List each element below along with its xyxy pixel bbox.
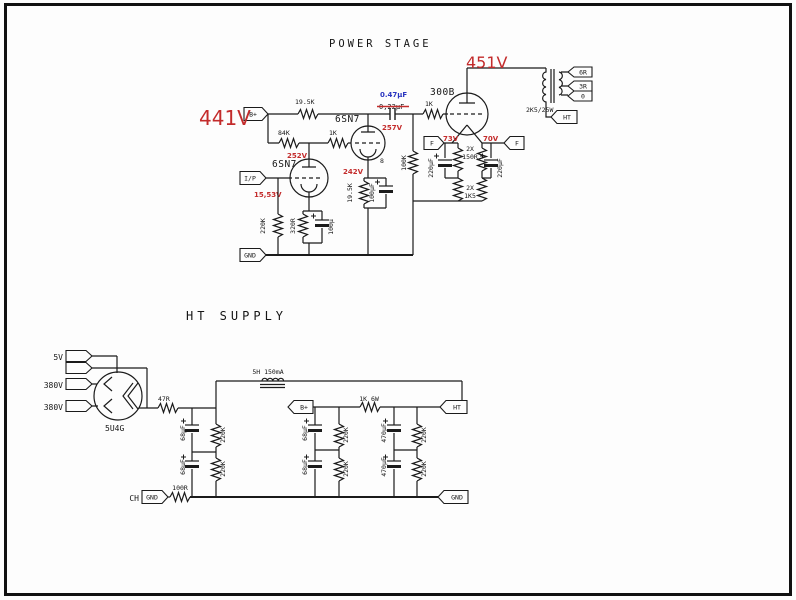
hv-voltage-label-2: 380V <box>44 403 63 412</box>
cap-filament-left <box>434 154 452 168</box>
tube3-plate-wire <box>459 68 546 103</box>
resistor-plate2-label: 19.5K <box>295 98 315 106</box>
resistor-plate1 <box>279 139 299 148</box>
wire-filter-col3 <box>394 407 417 497</box>
filament-r-value: 150R <box>462 153 478 161</box>
cap-col2-upper-label: 68µF <box>301 425 309 441</box>
hv-flag-1 <box>66 379 92 390</box>
ht-bplus-label: B+ <box>300 404 308 412</box>
resistor-1k6w-label: 1K 6W <box>359 395 379 403</box>
hv-voltage-label-1: 380V <box>44 381 63 390</box>
resistor-hum-right <box>478 178 487 201</box>
sec-3r-label: 3R <box>579 83 587 91</box>
resistor-gridleak3-label: 100K <box>400 155 408 171</box>
gnd-flag-label: GND <box>244 252 256 260</box>
cap-cathode2 <box>375 180 393 194</box>
resistor-gridleak1 <box>274 214 283 237</box>
annotation-257v: 257V <box>382 124 403 132</box>
resistor-grid2 <box>328 139 348 148</box>
tube1-cathode <box>301 184 317 211</box>
annotation-451v: 451V <box>466 53 508 72</box>
rectifier-anodes <box>104 377 112 413</box>
resistor-gridleak1-label: 220K <box>259 218 267 234</box>
input-flag-label: I/P <box>244 175 256 183</box>
cap-cathode2-label: 100µF <box>368 183 376 203</box>
cap-cathode1-label: 100µ <box>327 219 335 235</box>
schematic-page: POWER STAGE 19.5K 1K 0.47µF 0,22µF B+ 44… <box>0 0 796 600</box>
resistor-100r-label: 100R <box>172 484 188 492</box>
coupling-cap-new-value: 0.47µF <box>380 91 407 99</box>
filament-left-flag <box>424 137 444 150</box>
heater-flag-1 <box>66 351 92 362</box>
resistor-cathode1 <box>299 214 308 237</box>
resistor-1k6w <box>360 403 380 412</box>
wire-rectifier-inputs <box>92 356 147 408</box>
hv-flag-2 <box>66 401 92 412</box>
cap-col3-lower-label: 470µF <box>380 457 388 477</box>
resistor-cathode2-label: 19.5K <box>346 183 354 203</box>
resistor-gridstop-300b <box>423 110 443 119</box>
sec-0-flag <box>568 91 592 101</box>
cap-filament-right-label: 220µF <box>496 158 504 178</box>
cap-filament-left-label: 220µF <box>427 158 435 178</box>
tube2-pin8: 8 <box>380 157 384 165</box>
choke-symbol <box>260 378 285 387</box>
chassis-gnd-label: GND <box>146 494 158 502</box>
hum-r-qty: 2X <box>466 184 474 192</box>
resistor-col3-lower-label: 220K <box>420 461 428 477</box>
resistor-col2-lower-label: 220K <box>342 461 350 477</box>
heater-flag-2 <box>66 363 92 374</box>
resistor-plate1-label: 84K <box>278 129 290 137</box>
chassis-label: CH <box>129 494 139 503</box>
tube3-label: 300B <box>430 87 455 98</box>
choke-label: 5H 150mA <box>252 368 283 376</box>
cap-col1-upper-label: 68µF <box>179 425 187 441</box>
annotation-73v: 73V <box>443 135 459 143</box>
resistor-100r <box>170 493 190 502</box>
rectifier-label: 5U4G <box>105 424 124 433</box>
resistor-col2-upper-label: 220K <box>342 427 350 443</box>
rectifier-filament <box>123 383 138 409</box>
annotation-242v: 242V <box>343 168 364 176</box>
rectifier-envelope <box>94 372 142 420</box>
resistor-col1-upper-label: 220K <box>219 427 227 443</box>
sec-0-label: 0 <box>581 93 585 101</box>
resistor-filament-left <box>454 148 463 171</box>
resistor-gridleak3 <box>409 151 418 174</box>
annotation-252v: 252V <box>287 152 308 160</box>
schematic-canvas: POWER STAGE 19.5K 1K 0.47µF 0,22µF B+ 44… <box>0 0 796 600</box>
ht-gnd-label: GND <box>451 494 463 502</box>
ht-out-label: HT <box>453 404 461 412</box>
sec-6r-label: 6R <box>579 69 587 77</box>
resistor-cathode1-label: 320R <box>289 218 297 234</box>
cap-col3-upper-label: 470µF <box>380 423 388 443</box>
cap-col2-lower-label: 68µF <box>301 459 309 475</box>
wire-filter-col1 <box>192 408 216 497</box>
wire-input <box>266 178 292 255</box>
annotation-70v: 70V <box>483 135 499 143</box>
xfmr-secondary <box>559 72 568 95</box>
filament-right-flag <box>504 137 524 150</box>
resistor-47r-label: 47R <box>158 395 170 403</box>
xfmr-primary-label: 2K5/25W <box>526 106 553 114</box>
tube2-plate <box>361 114 375 132</box>
resistor-col3-upper-label: 220K <box>420 427 428 443</box>
ht-flag-label: HT <box>563 114 571 122</box>
resistor-47r <box>158 404 178 413</box>
tube2-label: 6SN7 <box>335 114 360 125</box>
resistor-hum-left <box>454 178 463 201</box>
cap-col1-lower-label: 68µF <box>179 459 187 475</box>
ht-supply-title: HT SUPPLY <box>186 309 287 323</box>
resistor-grid2-label: 1K <box>329 129 337 137</box>
xfmr-core <box>551 69 554 103</box>
tube1-label: 6SN7 <box>272 159 297 170</box>
heater-voltage-label: 5V <box>53 353 63 362</box>
resistor-col1-lower-label: 220K <box>219 461 227 477</box>
filament-r-qty: 2X <box>466 145 474 153</box>
filament-left-label: F <box>430 140 434 148</box>
power-stage-title: POWER STAGE <box>329 38 432 50</box>
wire-filter-col2 <box>315 407 339 497</box>
annotation-441v: 441V <box>199 106 251 130</box>
hum-r-value: 1K5 <box>464 192 476 200</box>
resistor-gridstop-label: 1K <box>425 100 433 108</box>
filament-right-label: F <box>515 140 519 148</box>
resistor-plate2 <box>298 110 318 119</box>
